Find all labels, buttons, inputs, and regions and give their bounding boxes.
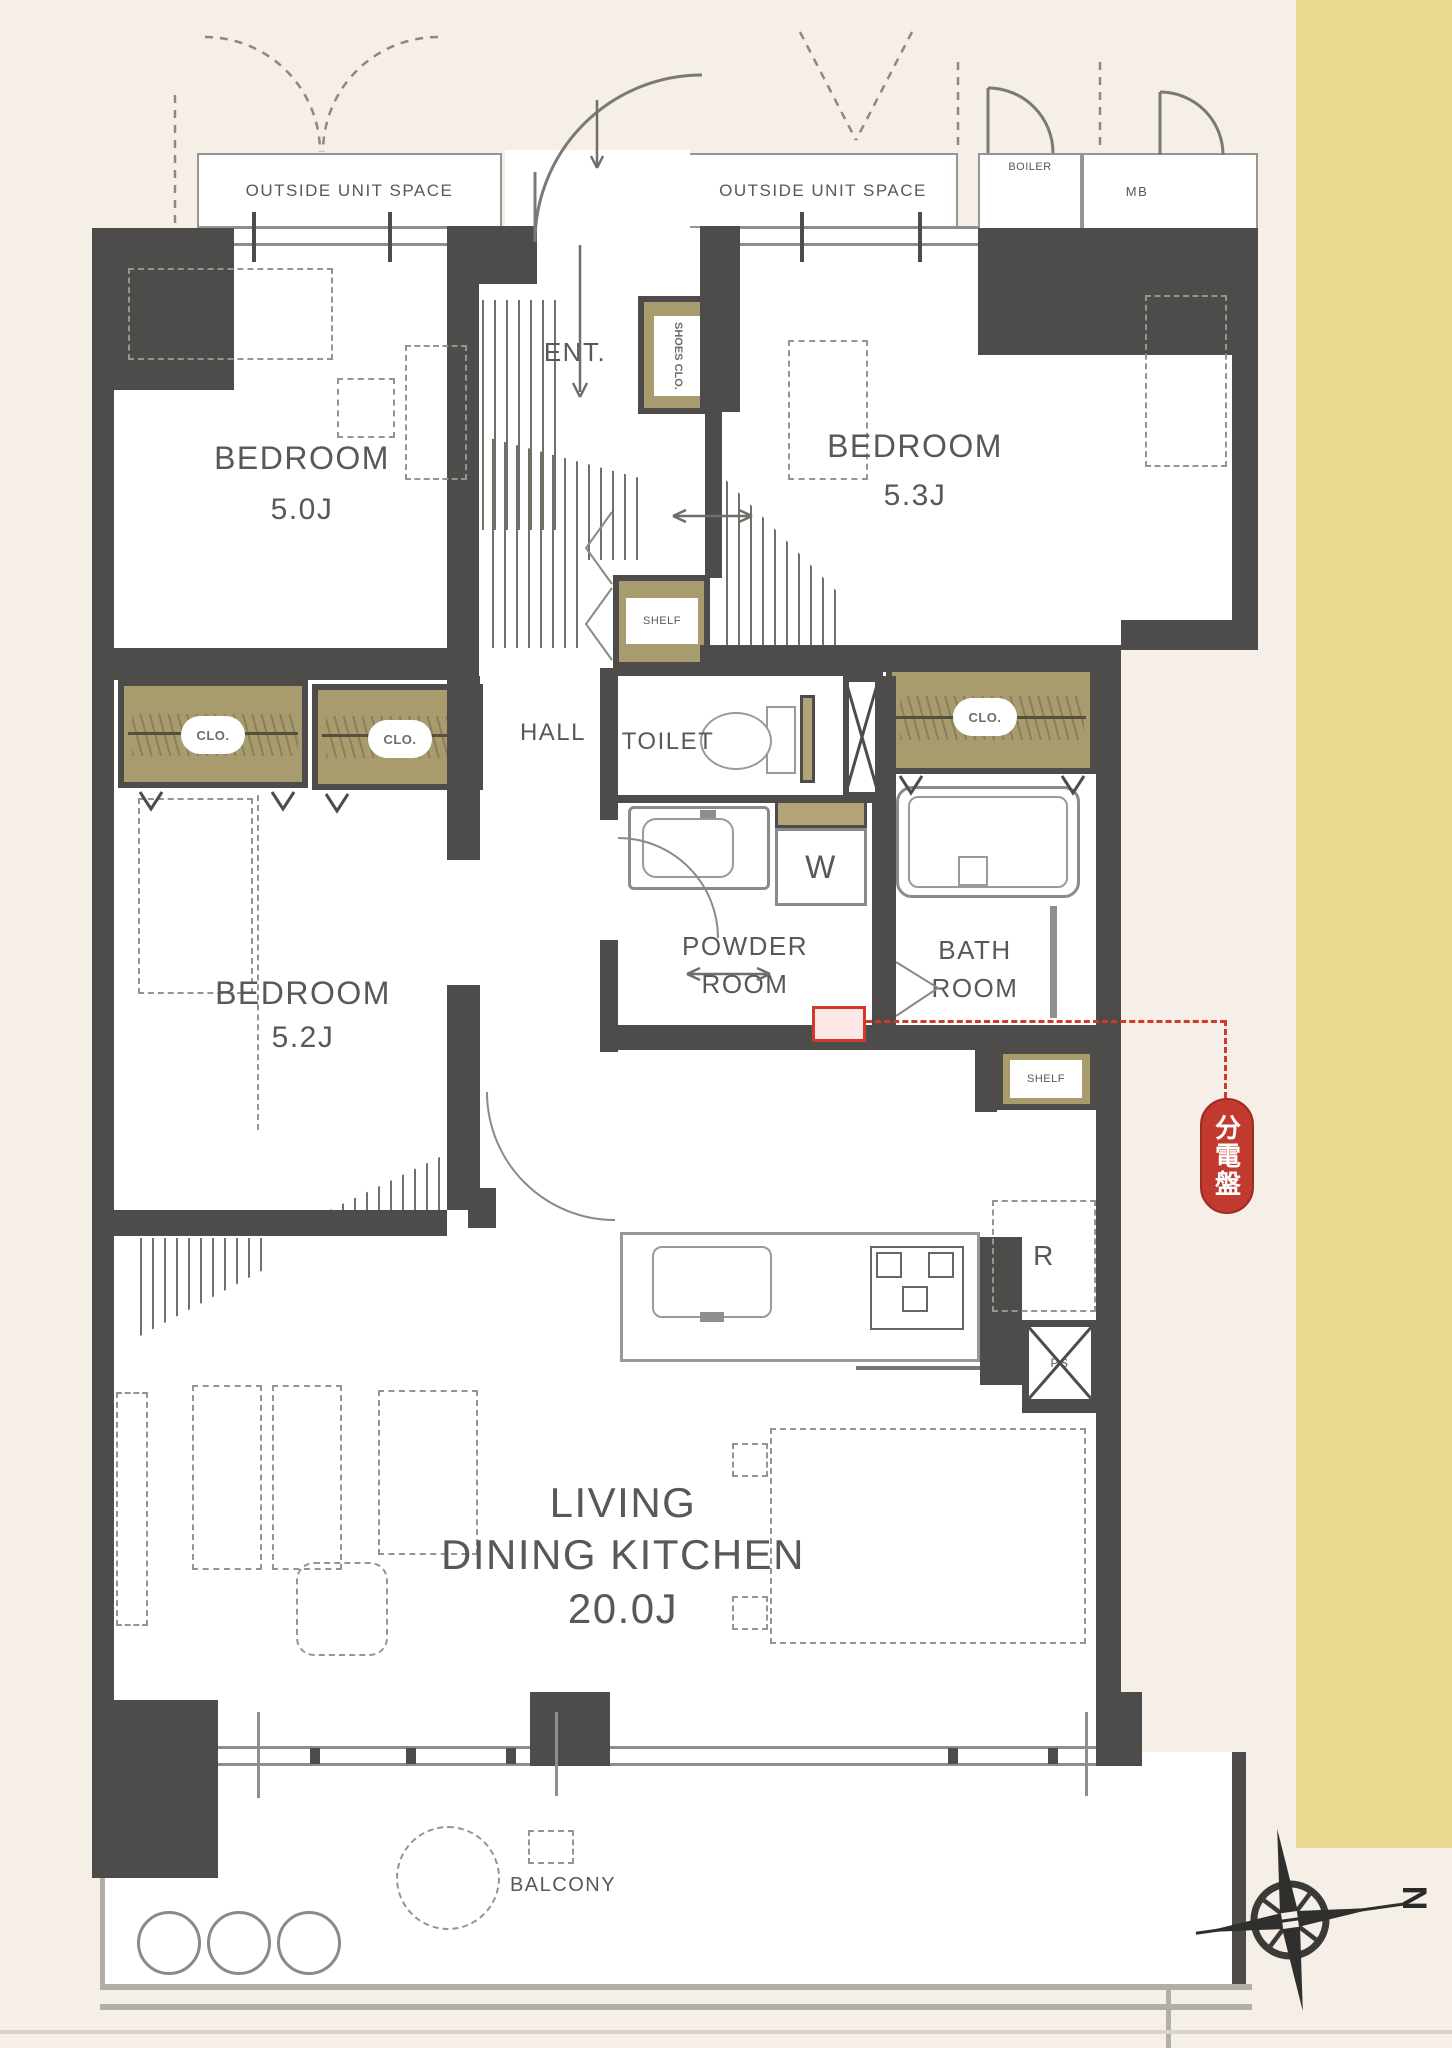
powder-room-label-2: ROOM [665,968,825,1000]
window-mullion [257,1712,260,1798]
bedroom3-label: BEDROOM [153,975,453,1011]
wall [447,985,480,1210]
wall [975,1050,997,1112]
window-mullion [555,1712,558,1796]
bath-room-label-2: ROOM [895,972,1055,1004]
wall [705,412,722,578]
washbasin-faucet [700,810,716,818]
room-divider-dash [257,795,259,1130]
balcony-railing [100,2004,1252,2010]
window-tick [1048,1748,1058,1764]
wall-pillar [92,1700,218,1878]
floor-plan: OUTSIDE UNIT SPACE OUTSIDE UNIT SPACE BO… [0,0,1452,2048]
powder-room-label-1: POWDER [665,930,825,962]
pipe-space-label: PS [1022,1350,1098,1376]
balcony-side-line [100,1878,105,1988]
distribution-board-marker [812,1006,866,1042]
bedroom2-area: 5.3J [765,478,1065,514]
entry-floor-hatch [492,560,582,648]
refrigerator-label: R [992,1200,1096,1312]
wall [1096,648,1121,1752]
red-leader-line [866,1020,1226,1023]
ldk-label-1: LIVING [398,1480,848,1526]
window-tick [506,1748,516,1764]
window-tick [406,1748,416,1764]
hall-label: HALL [493,718,613,748]
shoes-closet-label: SHOES CLO. [654,316,702,396]
sofa-outline [192,1385,262,1570]
window-mullion [800,212,804,262]
dashed-swing-arc [323,37,438,152]
kitchen-faucet [700,1312,724,1322]
boiler-label: BOILER [978,158,1082,176]
window-tick [310,1748,320,1764]
kitchen-sink [652,1246,772,1318]
washbasin-bowl [642,818,734,878]
stove-burner [902,1286,928,1312]
wall [447,676,480,860]
closet-1-label: CLO. [181,716,245,754]
outside-unit-space-left-label: OUTSIDE UNIT SPACE [197,153,502,228]
red-leader-line [1224,1020,1227,1098]
bedroom1-area: 5.0J [152,492,452,528]
wall-pillar [447,226,537,284]
meter-box-door-arc [1160,92,1223,155]
bathtub-inner [908,796,1068,888]
boiler-door-arc [988,88,1053,153]
window [610,1746,1096,1766]
planter [207,1911,271,1975]
window-mullion [918,212,922,262]
ldk-area: 20.0J [398,1586,848,1632]
dashed-swing-arc [205,37,320,152]
ldk-label-2: DINING KITCHEN [398,1532,848,1578]
distribution-board-stamp: 分電盤 [1200,1098,1254,1214]
sofa-outline [272,1385,342,1570]
window-mullion [1085,1712,1088,1796]
bath-drain [958,856,988,886]
wall [1232,1752,1246,1988]
site-boundary-line [0,2030,1452,2034]
stove-burner [928,1252,954,1278]
closet-3-label: CLO. [953,698,1017,736]
wall-pillar [1096,1692,1142,1766]
counter-edge [856,1366,980,1370]
dashed-swing-mark [800,32,912,140]
bedroom2-label: BEDROOM [765,428,1065,464]
compass-circle [1249,1879,1330,1960]
chair-outline [732,1443,768,1477]
wall [1232,355,1258,620]
wall [105,1210,447,1236]
furniture-outline [337,378,395,438]
closet-2-label: CLO. [368,720,432,758]
balcony-railing [100,1984,1252,1990]
distribution-board-stamp-text: 分電盤 [1209,1114,1246,1198]
hall-shelf-label: SHELF [626,598,698,644]
balcony-railing-post [1166,1984,1171,2048]
compass-north-label: N [1395,1886,1433,1911]
entrance-label: ENT. [520,336,630,368]
toilet-label: TOILET [608,727,728,757]
side-color-band [1296,0,1452,1848]
wall-pillar [530,1692,610,1766]
coffee-table-outline [296,1562,388,1656]
furniture-outline [1145,295,1227,467]
wall [1121,620,1258,650]
wall [105,648,479,680]
planter [137,1911,201,1975]
window [218,1746,530,1766]
washer-label: W [775,828,867,906]
window [234,226,447,246]
window-tick [948,1748,958,1764]
wall [613,668,883,676]
toilet-door [800,695,815,783]
balcony-floor [105,1752,1245,1988]
wall [700,226,740,412]
wall [92,228,114,1704]
bedroom3-area: 5.2J [153,1020,453,1056]
bed-outline [138,798,253,994]
pipe-shaft [843,676,881,798]
window [740,226,978,246]
bed-outline [128,268,333,360]
bedroom1-label: BEDROOM [152,440,452,476]
garden-chair-outline [528,1830,574,1864]
bath-room-label-1: BATH [895,934,1055,966]
window-mullion [252,212,256,262]
planter [277,1911,341,1975]
balcony-label: BALCONY [483,1872,643,1898]
wall-post [468,1188,496,1228]
window-mullion [388,212,392,262]
living-shelf-label: SHELF [1010,1060,1082,1098]
meter-box-label: MB [1082,180,1192,202]
tv-board-outline [116,1392,148,1626]
compass-spokes [1254,1884,1326,1956]
stove-burner [876,1252,902,1278]
